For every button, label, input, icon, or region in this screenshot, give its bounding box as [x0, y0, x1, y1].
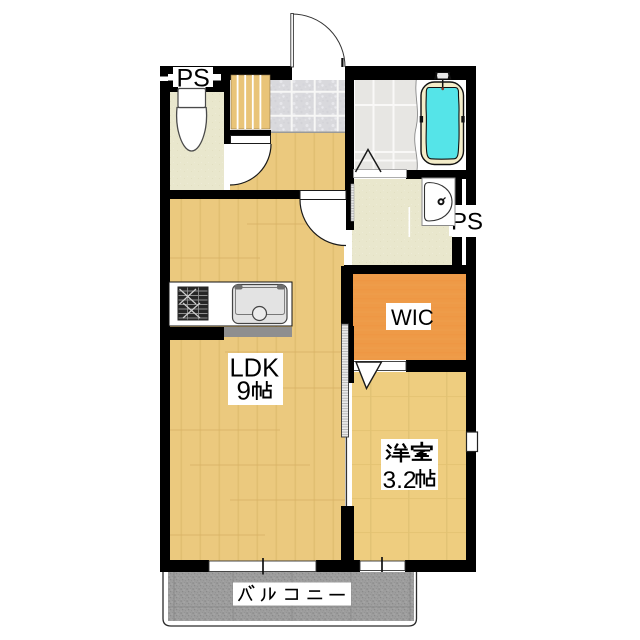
svg-text:3.2: 3.2 [383, 467, 417, 494]
svg-text:WIC: WIC [391, 305, 434, 330]
svg-text:PS: PS [451, 209, 483, 236]
svg-text:9: 9 [237, 376, 251, 406]
